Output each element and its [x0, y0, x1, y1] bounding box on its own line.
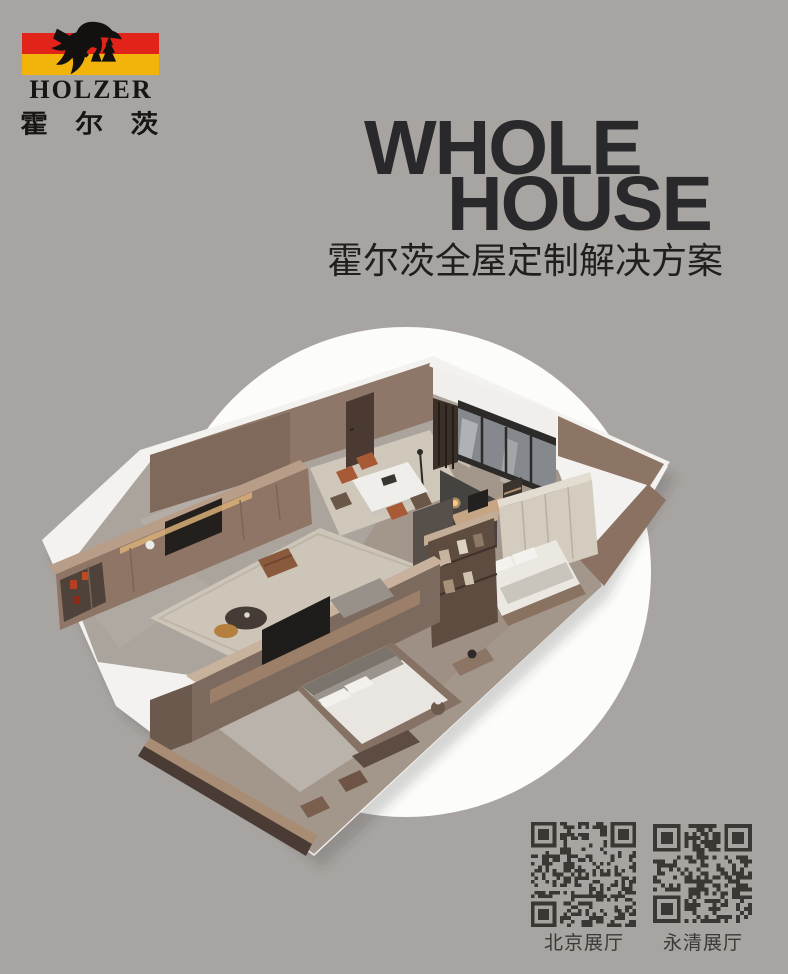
qr-label-yongqing: 永清展厅 — [648, 928, 758, 955]
qr-code-yongqing — [653, 823, 752, 924]
headline-subtitle: 霍尔茨全屋定制解决方案 — [327, 232, 747, 284]
holzer-logo: HOLZER 霍尔茨 — [18, 20, 164, 130]
lumberjack-icon — [44, 18, 132, 82]
brand-name-chinese: 霍尔茨 — [20, 104, 172, 140]
qr-label-beijing: 北京展厅 — [524, 928, 644, 955]
qr-code-beijing — [531, 822, 636, 927]
brand-name: HOLZER — [18, 75, 164, 105]
